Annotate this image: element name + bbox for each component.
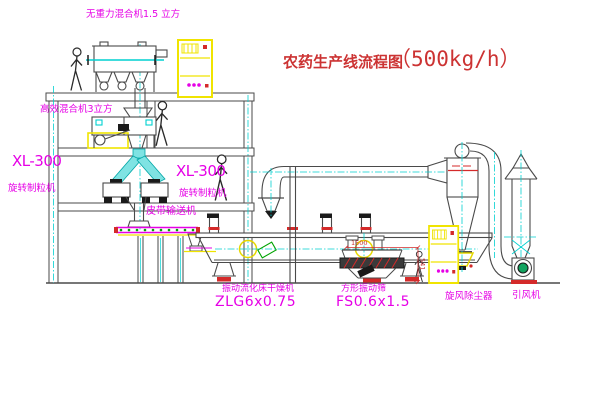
label-belt-conveyor: 皮带输送机 (146, 207, 196, 217)
control-cabinet-top (178, 40, 212, 97)
label-fan: 引风机 (512, 291, 541, 301)
control-cabinet-right (429, 226, 458, 283)
label-xl300-mid: XL-300 (176, 164, 225, 179)
induced-draft-fan (511, 258, 537, 284)
person-top-floor (71, 48, 82, 91)
label-granulator-mid: 旋转制粒机 (179, 189, 227, 199)
label-high-mixer: 高效混合机3立方 (40, 105, 113, 115)
label-granulator-left: 旋转制粒机 (8, 184, 56, 194)
belt-conveyor (114, 227, 200, 283)
dim-label-length: 1500 (351, 240, 368, 247)
label-dryer-model: ZLG6x0.75 (215, 295, 296, 309)
label-gravity-mixer: 无重力混合机1.5 立方 (86, 10, 180, 20)
dim-label-height: 541 (419, 258, 426, 270)
flow-diagram: 无重力混合机1.5 立方 农药生产线流程图 （500kg/h） 高效混合机3立方… (0, 0, 600, 403)
label-cyclone: 旋风除尘器 (445, 292, 493, 302)
label-sieve: 方形振动筛 (341, 285, 386, 294)
diagram-capacity: （500kg/h） (390, 49, 521, 70)
label-dryer: 振动流化床干燥机 (222, 285, 294, 294)
person-second-floor (156, 102, 167, 146)
label-xl300-left: XL-300 (12, 154, 61, 169)
label-sieve-model: FS0.6x1.5 (336, 295, 410, 309)
diagram-title: 农药生产线流程图 (283, 55, 403, 70)
